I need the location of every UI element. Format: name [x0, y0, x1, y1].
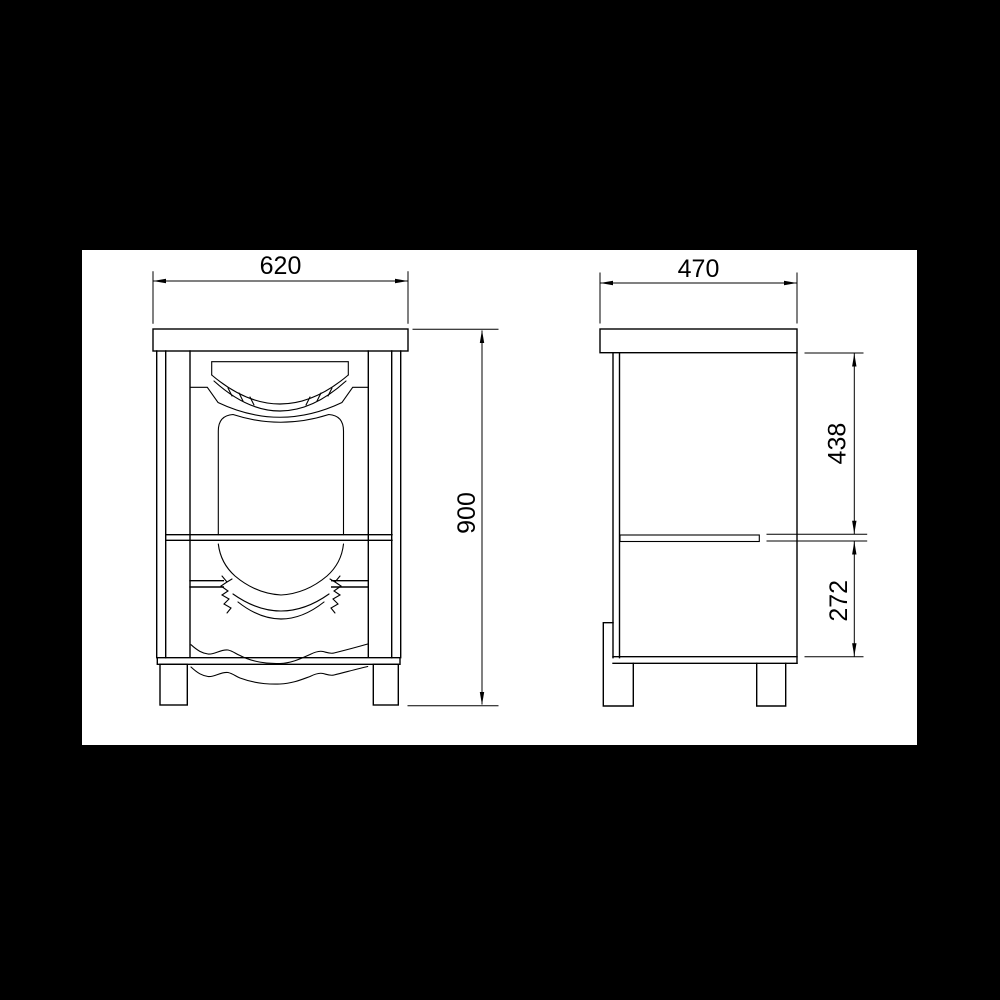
side-view: [600, 329, 867, 706]
dim-side-upper-height: 438: [805, 353, 863, 534]
dimensions: 620 900 470: [153, 252, 863, 706]
front-stiles: [157, 351, 401, 658]
cad-drawing: 620 900 470: [82, 250, 917, 745]
screenshot-canvas: 620 900 470: [0, 0, 1000, 1000]
dim-arrow: [852, 643, 856, 656]
dim-side-upper-text: 438: [824, 423, 852, 465]
dim-arrow: [153, 279, 166, 283]
side-panel-front-edge: [613, 353, 620, 658]
dim-side-lower-text: 272: [825, 580, 853, 622]
front-countertop: [153, 329, 408, 351]
front-skirt-wave-lower: [191, 667, 368, 685]
dim-side-depth: 470: [600, 255, 797, 323]
dim-arrow: [852, 354, 856, 367]
drawing-paper: 620 900 470: [82, 250, 917, 745]
dim-arrow: [395, 279, 408, 283]
dim-arrow: [852, 521, 856, 534]
dim-arrow: [784, 281, 797, 285]
dim-arrow: [852, 542, 856, 555]
front-door-tongue: [218, 544, 343, 595]
dim-front-width-text: 620: [260, 252, 302, 280]
dim-arrow: [480, 330, 484, 343]
dim-front-height-text: 900: [453, 492, 481, 534]
front-view: [153, 329, 408, 705]
dim-front-width: 620: [153, 252, 408, 323]
dim-front-height: 900: [408, 329, 498, 705]
front-skirt-wave-upper: [191, 644, 368, 664]
side-countertop: [600, 329, 797, 353]
dim-arrow: [600, 281, 613, 285]
front-drawer-curve-inner: [214, 381, 346, 411]
side-bottom-rail: [613, 657, 797, 664]
front-shelf-line: [166, 535, 392, 541]
front-drawer-curve-outer: [212, 375, 349, 404]
dim-side-depth-text: 470: [678, 255, 720, 283]
front-leg-right: [373, 664, 398, 705]
side-shelf-extension: [767, 534, 867, 541]
side-front-leg: [757, 663, 786, 706]
dim-side-lower-height: 272: [805, 542, 863, 657]
front-drawer-box: [212, 362, 349, 375]
front-leg-left: [160, 664, 187, 705]
dim-arrow: [480, 692, 484, 705]
front-carved-leaf-right: [330, 576, 341, 613]
side-shelf: [620, 535, 759, 542]
side-back-leg: [603, 623, 633, 706]
front-carved-leaf-left: [221, 576, 232, 613]
front-door-panel: [218, 415, 343, 535]
front-frame-rail-curve: [190, 387, 368, 417]
